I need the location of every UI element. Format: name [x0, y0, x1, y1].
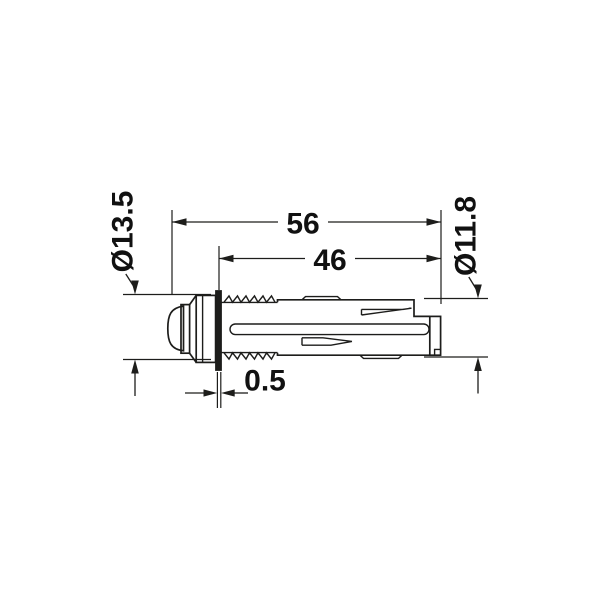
- mounting-flange: [216, 291, 222, 371]
- cap-chamfer-bottom: [190, 353, 197, 362]
- rib-teeth-top: [224, 296, 275, 302]
- dim-56-label: 56: [286, 208, 319, 241]
- dim-05-arrow-left: [204, 389, 218, 396]
- body-bottom-profile: [278, 353, 430, 355]
- rib-teeth-bottom: [224, 353, 275, 359]
- technical-drawing: 56 46 Ø13.5 Ø11.8 0.5: [0, 0, 600, 600]
- part-outline: [168, 291, 441, 371]
- dia118-arrow-down: [474, 285, 482, 299]
- cap-chamfer-top: [190, 295, 197, 304]
- end-cap-notch: [435, 349, 441, 355]
- dia118-label: Ø11.8: [450, 196, 483, 276]
- front-cap: [196, 295, 215, 362]
- dia135-label: Ø13.5: [107, 191, 140, 273]
- dimension-dia-13-5: Ø13.5: [107, 191, 140, 396]
- dia118-arrow-up: [474, 357, 482, 371]
- dim-05-arrow-right: [221, 389, 235, 396]
- dia135-arrow-down: [131, 281, 139, 295]
- dim-56-arrow-right: [427, 218, 442, 225]
- dimension-0-5: 0.5: [185, 365, 286, 398]
- button-ring: [181, 305, 190, 354]
- dimension-46: 46: [219, 244, 441, 277]
- body-top-profile: [278, 300, 430, 317]
- dim-56-arrow-left: [172, 218, 187, 225]
- dia135-arrow-up: [131, 360, 139, 374]
- dim-05-label: 0.5: [244, 365, 286, 398]
- dim-46-arrow-left: [219, 255, 234, 262]
- spring-tongue-upper: [362, 308, 412, 315]
- dim-46-label: 46: [313, 244, 346, 277]
- spring-tongue-lower: [302, 338, 352, 345]
- dimension-dia-11-8: Ø11.8: [450, 196, 483, 394]
- dim-46-arrow-right: [427, 255, 442, 262]
- dimension-56: 56: [172, 207, 441, 241]
- drawing-canvas: 56 46 Ø13.5 Ø11.8 0.5: [0, 0, 600, 600]
- core-slot: [230, 324, 429, 335]
